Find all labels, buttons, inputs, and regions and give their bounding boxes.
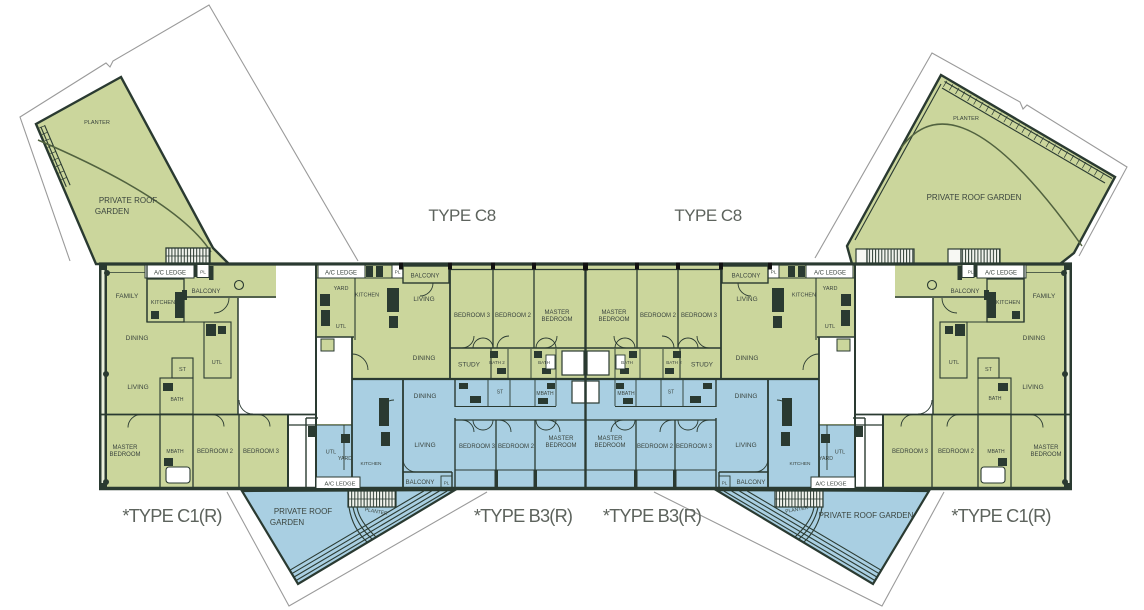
svg-text:DINING: DINING: [1023, 335, 1046, 342]
svg-text:PL: PL: [968, 270, 974, 276]
svg-text:PRIVATE ROOF: PRIVATE ROOF: [99, 196, 157, 205]
svg-text:YARD: YARD: [823, 286, 838, 292]
svg-text:UTL: UTL: [835, 450, 845, 456]
svg-text:BATH: BATH: [538, 360, 550, 365]
svg-text:A/C LEDGE: A/C LEDGE: [816, 482, 847, 488]
svg-text:ST: ST: [668, 390, 674, 396]
svg-text:PL: PL: [771, 270, 777, 276]
svg-text:*TYPE C1(R): *TYPE C1(R): [122, 506, 221, 526]
svg-text:PL: PL: [200, 270, 206, 276]
svg-text:MASTER: MASTER: [544, 310, 570, 316]
svg-text:DINING: DINING: [735, 393, 758, 400]
svg-text:PLANTER: PLANTER: [953, 116, 979, 122]
svg-text:A/C LEDGE: A/C LEDGE: [154, 271, 186, 277]
svg-text:KITCHEN: KITCHEN: [360, 461, 382, 467]
svg-text:FAMILY: FAMILY: [116, 293, 139, 300]
svg-text:BATH: BATH: [621, 360, 633, 365]
svg-text:DINING: DINING: [126, 335, 149, 342]
svg-text:KITCHEN: KITCHEN: [151, 300, 175, 306]
svg-text:YARD: YARD: [819, 456, 833, 462]
svg-text:DINING: DINING: [736, 355, 759, 362]
svg-text:BATH: BATH: [171, 397, 184, 403]
svg-text:BEDROOM 2: BEDROOM 2: [498, 444, 535, 450]
svg-text:ST: ST: [985, 367, 993, 373]
svg-text:KITCHEN: KITCHEN: [996, 300, 1020, 306]
svg-text:UTL: UTL: [949, 360, 959, 366]
svg-text:*TYPE C1(R): *TYPE C1(R): [951, 506, 1050, 526]
svg-text:PRIVATE ROOF GARDEN: PRIVATE ROOF GARDEN: [819, 511, 914, 520]
svg-text:UTL: UTL: [326, 450, 336, 456]
svg-text:BALCONY: BALCONY: [406, 480, 435, 486]
svg-text:LIVING: LIVING: [736, 296, 757, 303]
svg-text:A/C LEDGE: A/C LEDGE: [325, 271, 357, 277]
svg-text:GARDEN: GARDEN: [270, 518, 304, 527]
svg-text:MASTER: MASTER: [601, 310, 627, 316]
svg-text:*TYPE B3(R): *TYPE B3(R): [474, 506, 572, 526]
svg-text:LIVING: LIVING: [414, 442, 435, 449]
svg-text:STUDY: STUDY: [691, 362, 714, 369]
svg-text:BEDROOM 2: BEDROOM 2: [197, 449, 234, 455]
svg-text:ST: ST: [497, 390, 503, 396]
svg-text:BEDROOM 2: BEDROOM 2: [637, 444, 674, 450]
svg-text:BEDROOM: BEDROOM: [109, 452, 140, 458]
svg-text:PL: PL: [722, 481, 728, 486]
svg-text:DINING: DINING: [414, 393, 437, 400]
svg-text:A/C LEDGE: A/C LEDGE: [985, 271, 1017, 277]
svg-text:BALCONY: BALCONY: [411, 274, 440, 280]
svg-text:BATH 2: BATH 2: [666, 360, 682, 365]
svg-text:BEDROOM 2: BEDROOM 2: [640, 313, 677, 319]
svg-text:TYPE C8: TYPE C8: [428, 206, 495, 225]
svg-text:KITCHEN: KITCHEN: [355, 293, 379, 299]
svg-text:BEDROOM 3: BEDROOM 3: [676, 444, 713, 450]
svg-text:BATH 2: BATH 2: [489, 360, 505, 365]
svg-text:STUDY: STUDY: [458, 362, 481, 369]
svg-text:MASTER: MASTER: [548, 436, 574, 442]
svg-text:BEDROOM: BEDROOM: [594, 443, 625, 449]
svg-text:BEDROOM 3: BEDROOM 3: [459, 444, 496, 450]
svg-text:KITCHEN: KITCHEN: [789, 461, 811, 467]
svg-text:BEDROOM: BEDROOM: [541, 317, 572, 323]
svg-text:BEDROOM: BEDROOM: [1030, 452, 1061, 458]
svg-text:MBATH: MBATH: [617, 391, 635, 397]
svg-text:BEDROOM 2: BEDROOM 2: [495, 313, 532, 319]
svg-text:YARD: YARD: [334, 286, 349, 292]
svg-text:BEDROOM 3: BEDROOM 3: [892, 449, 929, 455]
svg-text:MASTER: MASTER: [1033, 445, 1059, 451]
svg-text:KITCHEN: KITCHEN: [792, 293, 816, 299]
svg-text:BATH: BATH: [989, 396, 1002, 402]
svg-text:BEDROOM 3: BEDROOM 3: [454, 313, 491, 319]
svg-text:*TYPE B3(R): *TYPE B3(R): [603, 506, 701, 526]
svg-text:MBATH: MBATH: [166, 449, 184, 455]
svg-text:BEDROOM 3: BEDROOM 3: [681, 313, 718, 319]
svg-text:UTL: UTL: [336, 324, 346, 330]
svg-text:YARD: YARD: [338, 456, 352, 462]
svg-text:BALCONY: BALCONY: [951, 289, 980, 295]
svg-text:ST: ST: [179, 367, 187, 373]
svg-text:LIVING: LIVING: [735, 442, 756, 449]
svg-text:TYPE C8: TYPE C8: [674, 206, 741, 225]
svg-text:PRIVATE ROOF GARDEN: PRIVATE ROOF GARDEN: [927, 193, 1022, 202]
svg-text:GARDEN: GARDEN: [95, 207, 129, 216]
svg-text:UTL: UTL: [825, 324, 835, 330]
svg-text:LIVING: LIVING: [413, 296, 434, 303]
svg-text:BALCONY: BALCONY: [737, 480, 766, 486]
svg-text:BEDROOM 3: BEDROOM 3: [243, 449, 280, 455]
svg-text:MASTER: MASTER: [597, 436, 623, 442]
svg-text:PRIVATE ROOF: PRIVATE ROOF: [274, 507, 332, 516]
svg-text:DINING: DINING: [413, 355, 436, 362]
svg-text:LIVING: LIVING: [127, 384, 148, 391]
svg-text:PL: PL: [395, 270, 401, 276]
svg-text:LIVING: LIVING: [1022, 384, 1043, 391]
svg-text:MBATH: MBATH: [987, 449, 1005, 455]
svg-text:PL: PL: [444, 481, 450, 486]
svg-text:BEDROOM: BEDROOM: [545, 443, 576, 449]
svg-text:A/C LEDGE: A/C LEDGE: [814, 271, 846, 277]
svg-text:PLANTER: PLANTER: [84, 120, 110, 126]
svg-text:BEDROOM 2: BEDROOM 2: [938, 449, 975, 455]
svg-text:A/C LEDGE: A/C LEDGE: [325, 482, 356, 488]
svg-text:FAMILY: FAMILY: [1033, 293, 1056, 300]
svg-text:MBATH: MBATH: [536, 391, 554, 397]
svg-text:BALCONY: BALCONY: [732, 274, 761, 280]
svg-text:BALCONY: BALCONY: [192, 289, 221, 295]
svg-text:UTL: UTL: [212, 360, 222, 366]
svg-text:MASTER: MASTER: [112, 445, 138, 451]
svg-text:BEDROOM: BEDROOM: [598, 317, 629, 323]
